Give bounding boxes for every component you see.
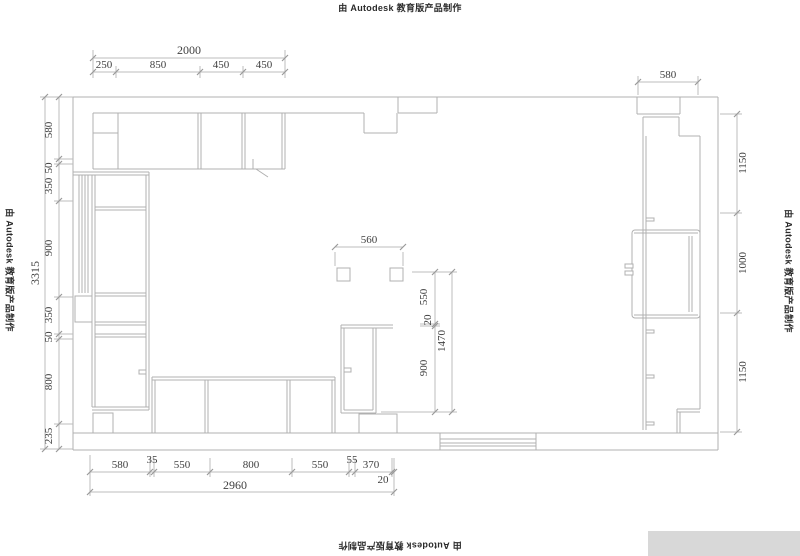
handle-mark (139, 370, 146, 374)
dim-island-width: 560 (332, 234, 406, 266)
floor-plan-drawing: 2000 250 850 450 450 580 3315 580 50 350… (0, 0, 800, 556)
island-base-box (359, 414, 397, 433)
left-cabinet-column (73, 172, 149, 410)
dim-top-right-width: 580 (660, 69, 677, 81)
dim-top-part: 450 (213, 59, 230, 71)
dim-bottom-part: 550 (174, 459, 191, 471)
dim-left-part: 235 (43, 427, 55, 444)
dim-bottom-part: 20 (378, 474, 390, 486)
dim-right: 1150 1000 1150 (720, 111, 749, 435)
dim-bottom-part: 35 (147, 454, 159, 466)
dim-bottom-part: 55 (347, 454, 359, 466)
island-cabinet (341, 325, 397, 433)
dim-bottom-total: 2960 (223, 478, 247, 492)
dim-left-part: 50 (43, 331, 55, 343)
shelf-mark (646, 330, 654, 333)
dim-bottom-part: 550 (312, 459, 329, 471)
dim-top-right: 580 (635, 69, 701, 95)
shelf-mark (646, 218, 654, 221)
dim-island-width-label: 560 (361, 234, 378, 246)
bottom-cabinet-run (93, 377, 335, 433)
bottom-right-counter (677, 409, 700, 433)
dim-left-part: 900 (43, 239, 55, 256)
hinge-mark (625, 264, 633, 268)
dim-top-total: 2000 (177, 43, 201, 57)
dim-bottom: 580 35 550 800 550 55 370 20 2960 (87, 454, 397, 496)
dim-left-part: 50 (43, 162, 55, 174)
dim-bottom-part: 800 (243, 459, 260, 471)
wall-niche (75, 296, 92, 322)
right-cabinet-column (643, 117, 700, 430)
shelf-mark (646, 422, 654, 425)
dim-left-part: 350 (43, 306, 55, 323)
top-cabinet-run (93, 97, 437, 177)
dim-left: 3315 580 50 350 900 350 50 800 235 (28, 94, 73, 452)
table-legs (337, 268, 403, 281)
refrigerator (625, 230, 700, 318)
corner-box (93, 413, 113, 433)
top-right-cabinet (637, 97, 700, 136)
dim-bottom-part: 370 (363, 459, 380, 471)
table-leg (337, 268, 350, 281)
dim-left-part: 350 (43, 177, 55, 194)
dim-top: 2000 250 850 450 450 (90, 43, 288, 78)
shelf-mark (646, 375, 654, 378)
room-walls (73, 97, 718, 450)
dim-left-part: 580 (43, 121, 55, 138)
cad-canvas: 由 Autodesk 教育版产品制作 由 Autodesk 教育版产品制作 由 … (0, 0, 800, 556)
dim-right-part: 1150 (737, 152, 749, 174)
dim-island-vertical: 550 20 900 1470 (381, 269, 457, 415)
dim-top-part: 850 (150, 59, 167, 71)
dim-island-part: 20 (422, 314, 434, 326)
dim-left-total: 3315 (28, 261, 42, 285)
dim-bottom-part: 580 (112, 459, 129, 471)
dim-right-part: 1000 (737, 252, 749, 275)
dim-top-part: 250 (96, 59, 113, 71)
dim-top-part: 450 (256, 59, 273, 71)
dim-left-part: 800 (43, 373, 55, 390)
dim-island-part: 550 (418, 288, 430, 305)
door-threshold (440, 433, 536, 450)
dim-island-part: 900 (418, 359, 430, 376)
dim-island-total: 1470 (436, 330, 448, 353)
table-leg (390, 268, 403, 281)
dim-right-part: 1150 (737, 361, 749, 383)
handle-mark (344, 368, 351, 372)
hinge-mark (625, 271, 633, 275)
